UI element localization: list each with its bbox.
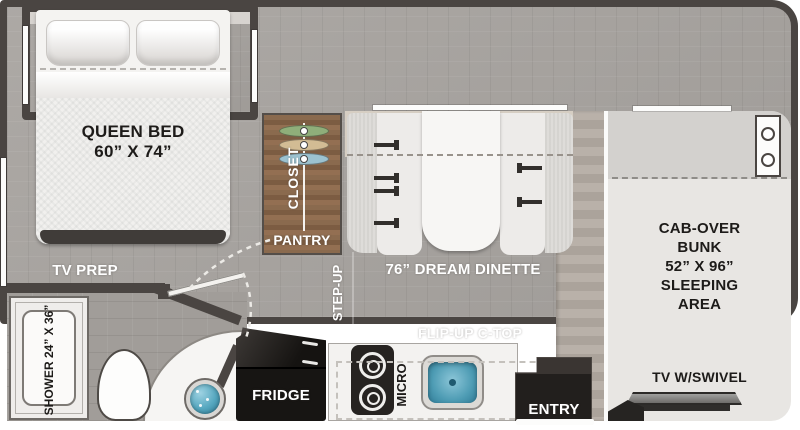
window [23, 26, 28, 104]
window [1, 158, 6, 286]
vanity-sink [184, 378, 226, 420]
sink-sparkle-icon [199, 404, 202, 407]
closet-label: CLOSET [285, 133, 301, 223]
step-up-label: STEP-UP [329, 248, 345, 338]
seatbelt-icon [374, 221, 398, 225]
tv-base-icon [638, 405, 730, 411]
dinette-seat-left [377, 113, 422, 255]
tv-icon [626, 392, 742, 405]
cab-console-panel [755, 115, 781, 177]
flip-up-ctop-label: FLIP-UP C-TOP [390, 325, 550, 342]
fridge-label: FRIDGE [236, 387, 326, 405]
queen-bed: QUEEN BED 60” X 74” [36, 10, 230, 244]
seatbelt-icon [374, 189, 398, 193]
sink-sparkle-icon [206, 398, 209, 401]
window [252, 30, 257, 102]
sink-sparkle-icon [196, 390, 199, 393]
bed-foot-rail [40, 230, 226, 244]
seatbelt-icon [518, 200, 542, 204]
bed-stitch-line [40, 68, 226, 70]
entry-door-threshold [516, 419, 594, 425]
dinette-slide-dashed-line [347, 154, 573, 156]
dinette-bench-right [545, 113, 573, 253]
seatbelt-icon [518, 166, 542, 170]
pillow [46, 20, 130, 66]
rv-floorplan: CAB-OVER BUNK 52” X 96” SLEEPING AREA TV… [0, 0, 800, 430]
shower-label: SHOWER 24” X 36” [34, 313, 64, 407]
bed-duvet [36, 98, 230, 244]
dinette-label: 76” DREAM DINETTE [368, 261, 558, 279]
bed-sheet-fold [36, 72, 230, 100]
tv-swivel-label: TV W/SWIVEL [608, 369, 791, 386]
queen-bed-label: QUEEN BED 60” X 74” [36, 122, 230, 163]
micro-label: MICRO [393, 355, 409, 415]
fridge: FRIDGE [232, 329, 330, 421]
entry-label: ENTRY [518, 401, 590, 419]
pantry-label: PANTRY [264, 232, 340, 249]
window [373, 105, 567, 110]
bathroom-wall [0, 283, 165, 293]
tv-prep-label: TV PREP [30, 262, 140, 280]
cup-holder-icon [761, 127, 775, 141]
dinette-table [422, 111, 500, 251]
cab-over-bunk-area: CAB-OVER BUNK 52” X 96” SLEEPING AREA TV… [604, 111, 791, 421]
seatbelt-icon [374, 143, 398, 147]
step-edge [352, 252, 354, 342]
bunk-slide-dashed-line [612, 177, 787, 179]
cup-holder-icon [761, 153, 775, 167]
pillow [136, 20, 220, 66]
cab-over-bunk-label: CAB-OVER BUNK 52” X 96” SLEEPING AREA [608, 219, 791, 314]
dinette-bench-left [347, 113, 377, 253]
dinette-seat-right [500, 113, 545, 255]
window [633, 106, 731, 111]
seatbelt-icon [374, 176, 398, 180]
